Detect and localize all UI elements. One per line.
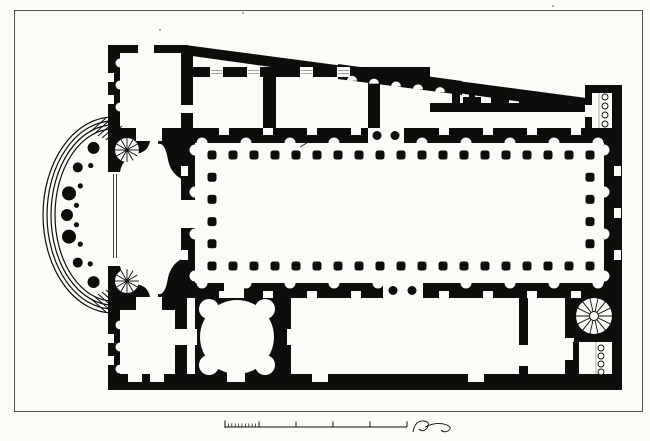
rotunda-niches [199, 299, 275, 375]
engraving-page [0, 0, 650, 441]
floor-plan-drawing [0, 0, 650, 441]
